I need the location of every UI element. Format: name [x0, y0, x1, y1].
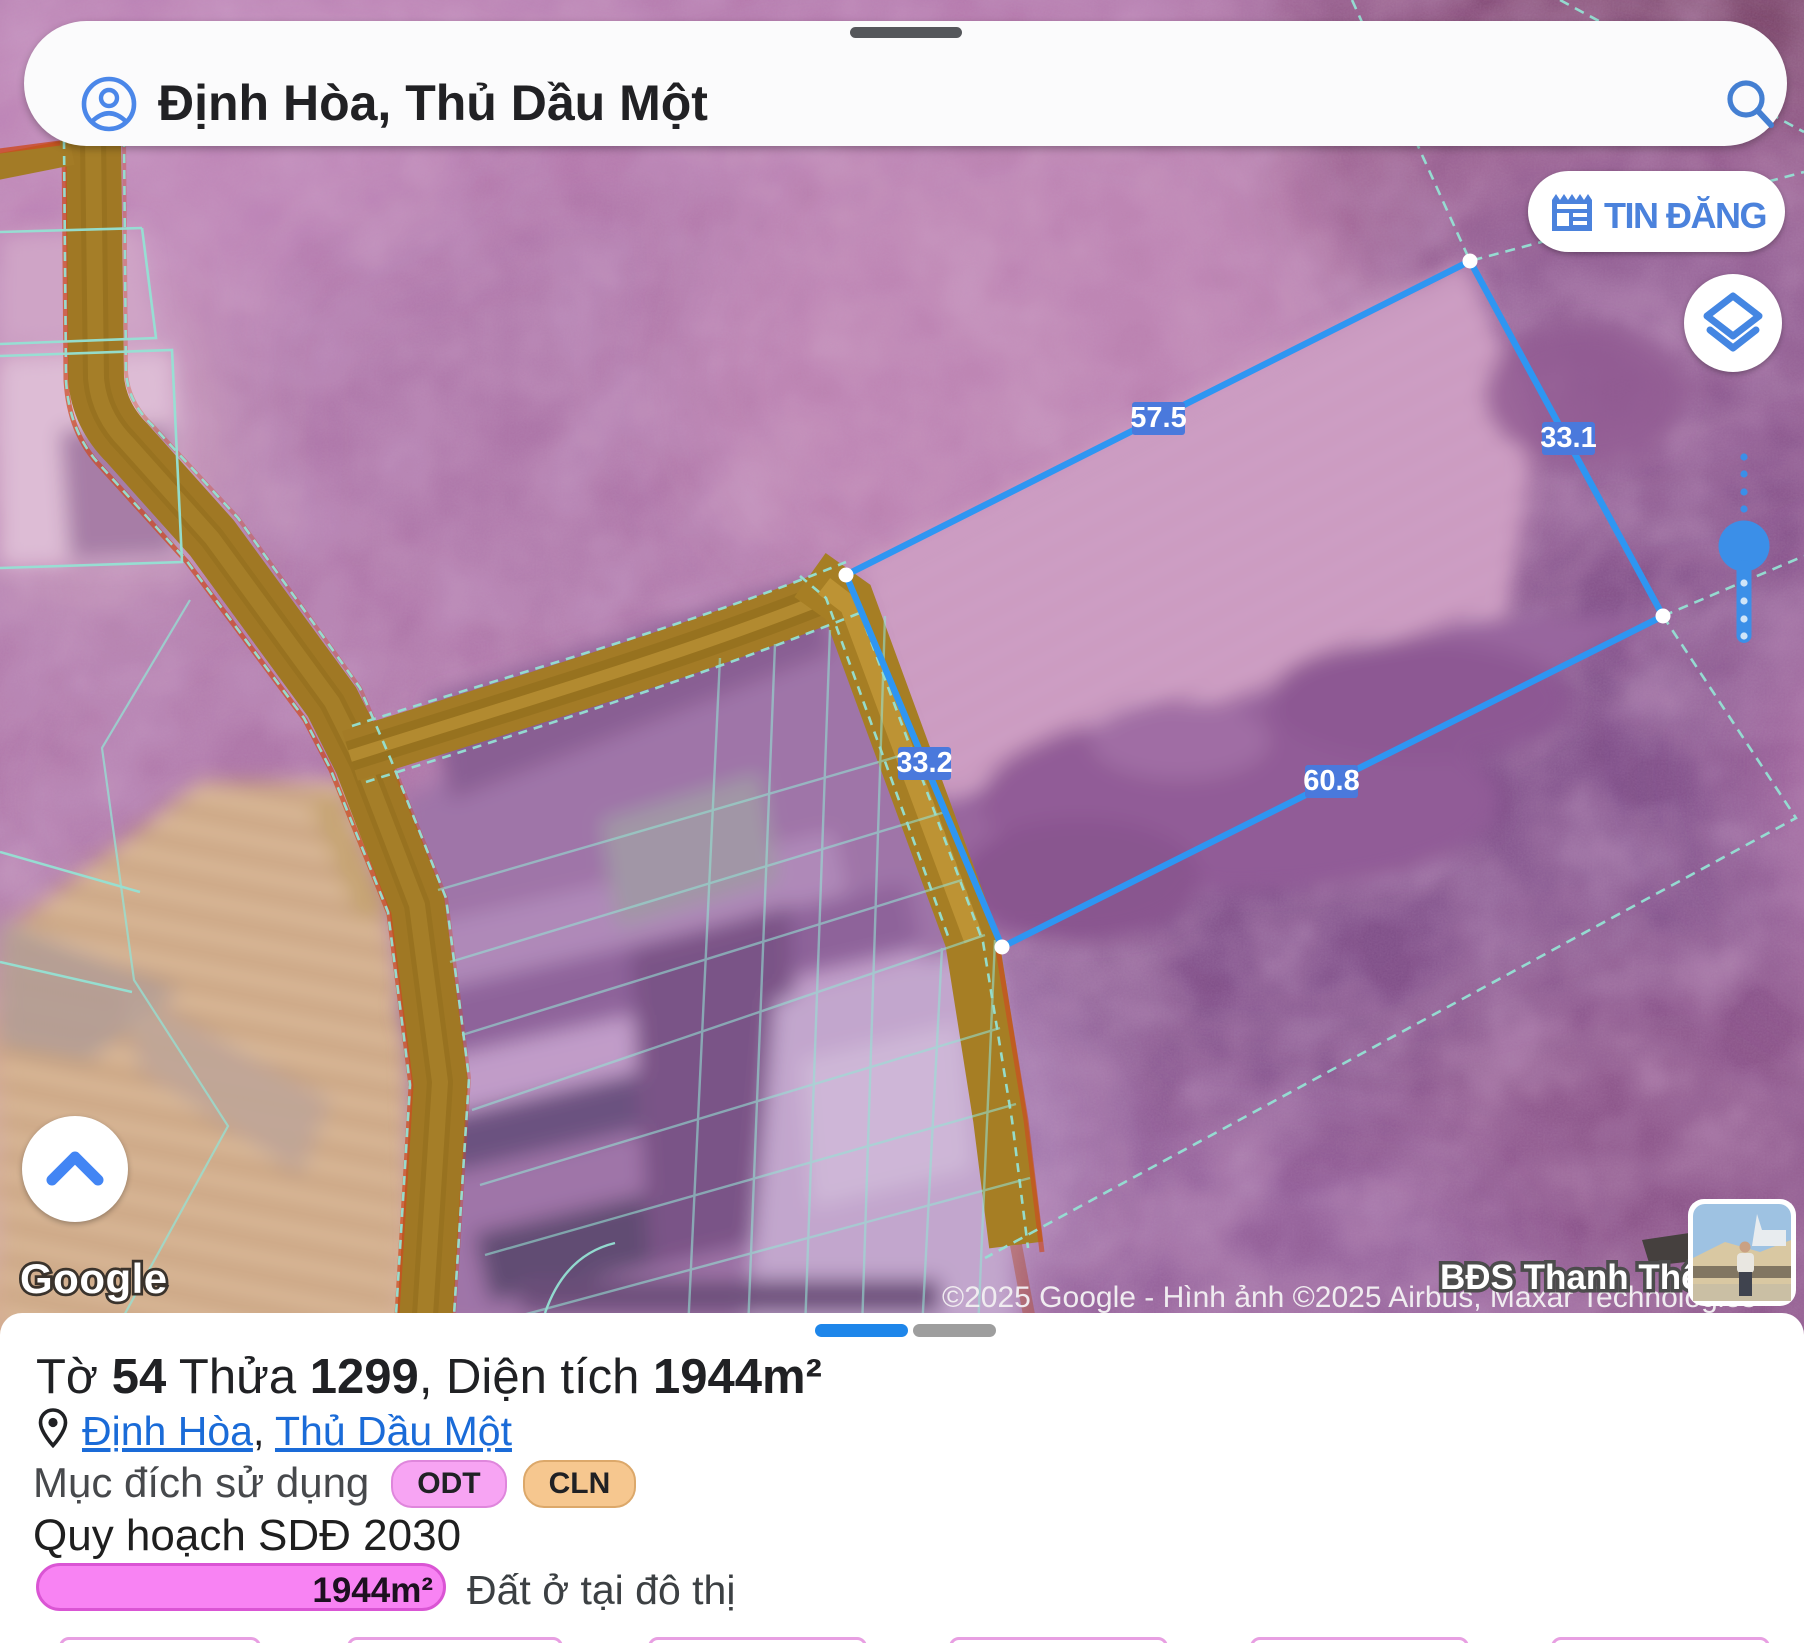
- svg-text:57.5: 57.5: [1130, 402, 1186, 434]
- svg-text:33.2: 33.2: [896, 747, 952, 779]
- svg-text:BĐS Thanh Thế: BĐS Thanh Thế: [1440, 1258, 1701, 1297]
- svg-text:60.8: 60.8: [1303, 765, 1359, 797]
- svg-text:33.1: 33.1: [1540, 422, 1596, 454]
- svg-text:Google: Google: [20, 1255, 168, 1302]
